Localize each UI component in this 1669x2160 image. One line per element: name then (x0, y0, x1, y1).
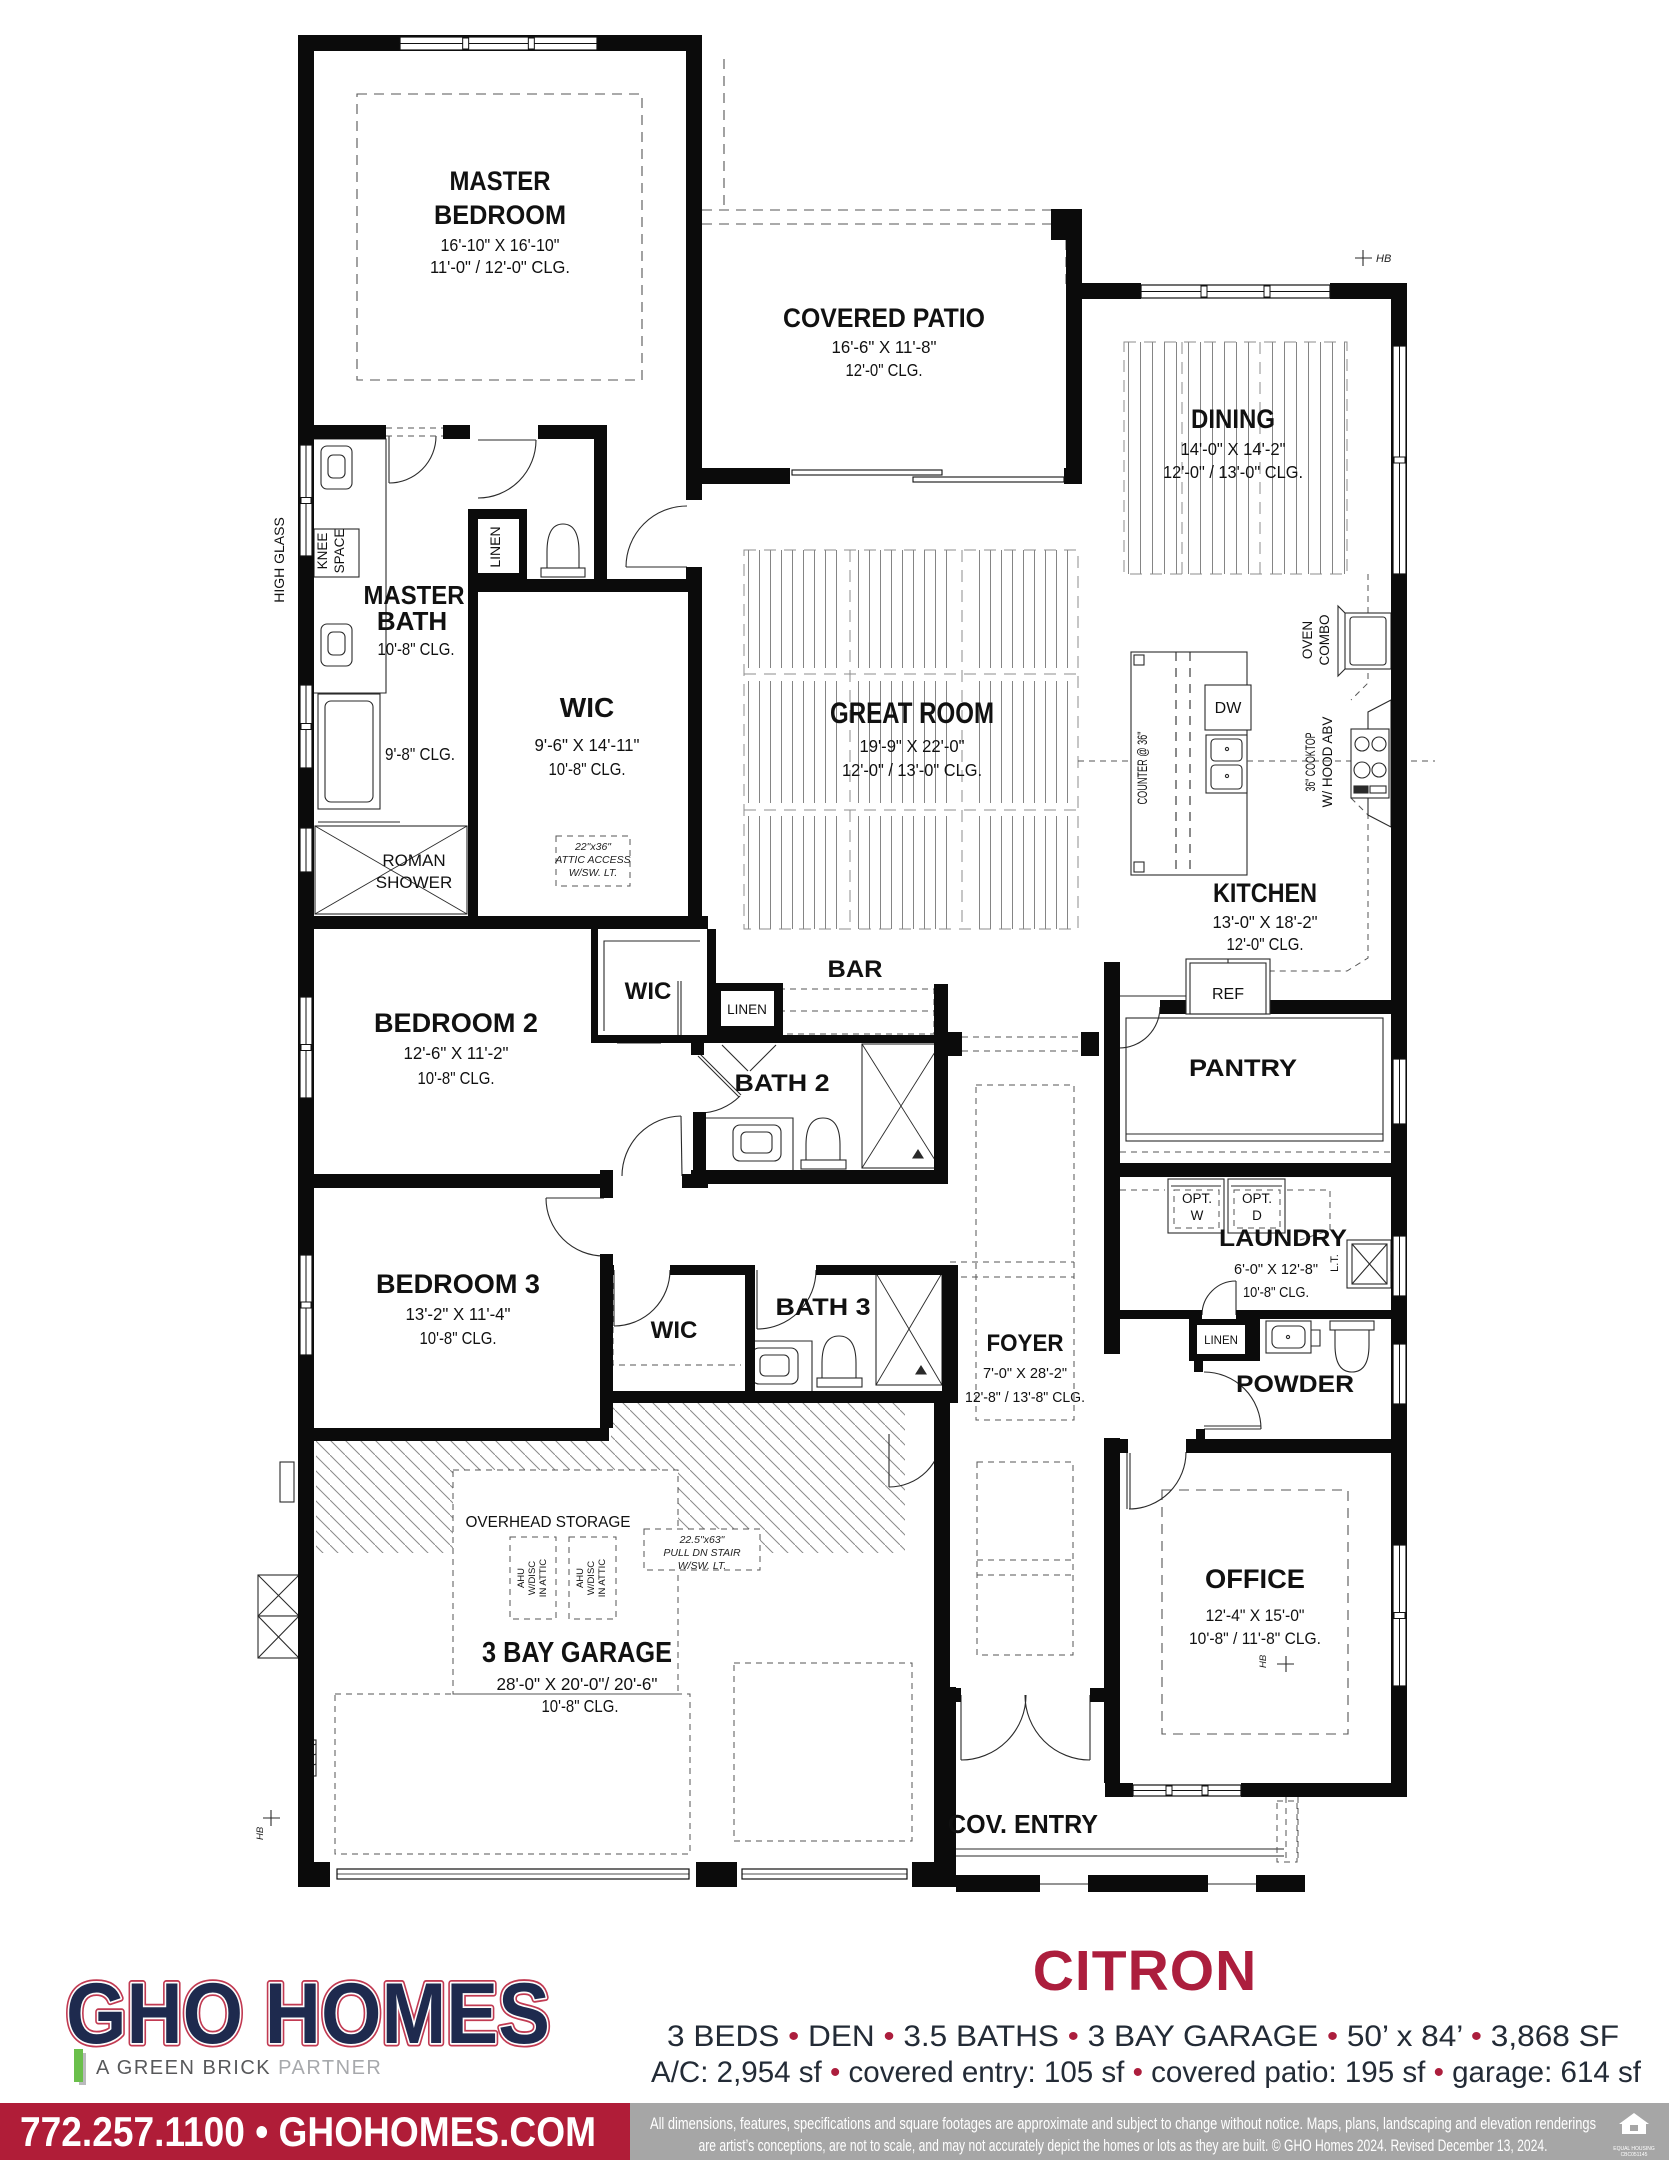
svg-text:are artist’s conceptions, are: are artist’s conceptions, are not to sca… (699, 2137, 1548, 2155)
svg-text:OVEN: OVEN (1300, 621, 1315, 659)
svg-text:All dimensions, features, spec: All dimensions, features, specifications… (650, 2115, 1596, 2133)
svg-text:16'-10" X 16'-10": 16'-10" X 16'-10" (441, 235, 560, 255)
svg-text:PANTRY: PANTRY (1189, 1055, 1297, 1082)
svg-text:10'-8" CLG.: 10'-8" CLG. (420, 1328, 497, 1348)
svg-text:DINING: DINING (1191, 404, 1275, 434)
svg-text:LINEN: LINEN (727, 1002, 767, 1017)
svg-text:BEDROOM 3: BEDROOM 3 (376, 1269, 540, 1299)
svg-text:SHOWER: SHOWER (376, 873, 453, 892)
svg-text:BAR: BAR (828, 956, 883, 983)
svg-text:WIC: WIC (625, 978, 672, 1005)
svg-text:LINEN: LINEN (1204, 1335, 1238, 1347)
svg-text:W/DISC: W/DISC (527, 1561, 538, 1595)
svg-text:9'-8" CLG.: 9'-8" CLG. (385, 744, 455, 764)
svg-text:CITRON: CITRON (1033, 1939, 1257, 2003)
svg-text:10'-8" CLG.: 10'-8" CLG. (418, 1068, 495, 1088)
svg-text:12'-0" CLG.: 12'-0" CLG. (846, 360, 923, 380)
svg-text:COUNTER @ 36": COUNTER @ 36" (1134, 731, 1150, 804)
svg-text:BATH 3: BATH 3 (776, 1294, 871, 1321)
svg-text:FOYER: FOYER (987, 1330, 1064, 1357)
svg-text:6'-0" X 12'-8": 6'-0" X 12'-8" (1234, 1261, 1318, 1278)
svg-text:ROMAN: ROMAN (382, 851, 445, 870)
svg-text:COVERED PATIO: COVERED PATIO (783, 303, 985, 333)
svg-text:3 BEDS • DEN • 3.5 BATHS • 3 B: 3 BEDS • DEN • 3.5 BATHS • 3 BAY GARAGE … (667, 2020, 1619, 2053)
svg-text:13'-0" X 18'-2": 13'-0" X 18'-2" (1213, 912, 1318, 932)
svg-text:DW: DW (1215, 700, 1243, 717)
svg-text:7'-0" X 28'-2": 7'-0" X 28'-2" (983, 1365, 1067, 1382)
svg-text:KITCHEN: KITCHEN (1213, 878, 1317, 908)
svg-text:3 BAY GARAGE: 3 BAY GARAGE (482, 1637, 672, 1669)
svg-text:W/DISC: W/DISC (586, 1561, 597, 1595)
svg-text:10'-8" / 11'-8" CLG.: 10'-8" / 11'-8" CLG. (1189, 1630, 1321, 1648)
svg-text:22.5"x63": 22.5"x63" (679, 1534, 726, 1546)
svg-text:COV. ENTRY: COV. ENTRY (948, 1809, 1098, 1839)
svg-text:WIC: WIC (560, 692, 614, 723)
svg-text:10'-8" CLG.: 10'-8" CLG. (378, 639, 455, 659)
svg-text:KNEE: KNEE (315, 533, 330, 570)
svg-text:HB: HB (1376, 253, 1391, 265)
svg-text:772.257.1100 • GHOHOMES.COM: 772.257.1100 • GHOHOMES.COM (20, 2108, 596, 2155)
svg-text:LINEN: LINEN (487, 526, 503, 567)
svg-text:12'-0" / 13'-0" CLG.: 12'-0" / 13'-0" CLG. (1163, 462, 1303, 482)
svg-text:12'-8" / 13'-8" CLG.: 12'-8" / 13'-8" CLG. (965, 1389, 1085, 1406)
svg-text:POWDER: POWDER (1236, 1371, 1354, 1398)
svg-text:BEDROOM: BEDROOM (434, 200, 566, 230)
svg-text:AHU: AHU (516, 1568, 527, 1588)
svg-text:REF: REF (1212, 986, 1244, 1003)
svg-text:14'-0" X 14'-2": 14'-0" X 14'-2" (1181, 439, 1286, 459)
svg-text:36" COOKTOP: 36" COOKTOP (1303, 733, 1318, 792)
svg-text:L.T.: L.T. (1329, 1254, 1341, 1272)
svg-text:9'-6" X 14'-11": 9'-6" X 14'-11" (535, 735, 640, 755)
svg-text:10'-8" CLG.: 10'-8" CLG. (542, 1696, 619, 1716)
svg-text:OFFICE: OFFICE (1205, 1564, 1305, 1594)
svg-text:GHO HOMES: GHO HOMES (66, 1966, 550, 2062)
svg-text:IN ATTIC: IN ATTIC (597, 1559, 608, 1597)
svg-text:11'-0" / 12'-0" CLG.: 11'-0" / 12'-0" CLG. (430, 257, 570, 277)
svg-text:BATH 2: BATH 2 (735, 1070, 830, 1097)
svg-text:CBC051145: CBC051145 (1621, 2152, 1648, 2158)
svg-text:W: W (1191, 1208, 1204, 1223)
svg-text:12'-4" X 15'-0": 12'-4" X 15'-0" (1206, 1607, 1305, 1625)
svg-text:12'-6" X 11'-2": 12'-6" X 11'-2" (404, 1043, 509, 1063)
svg-text:W/ HOOD ABV: W/ HOOD ABV (1320, 717, 1335, 808)
svg-text:A GREEN BRICK PARTNER: A GREEN BRICK PARTNER (96, 2057, 382, 2079)
svg-text:12'-0" / 13'-0" CLG.: 12'-0" / 13'-0" CLG. (842, 760, 982, 780)
svg-text:SPACE: SPACE (332, 529, 347, 574)
svg-text:LAUNDRY: LAUNDRY (1219, 1225, 1347, 1252)
svg-text:W/SW. LT.: W/SW. LT. (678, 1560, 727, 1572)
svg-text:13'-2" X 11'-4": 13'-2" X 11'-4" (406, 1304, 511, 1324)
svg-text:BEDROOM 2: BEDROOM 2 (374, 1008, 538, 1038)
svg-text:HIGH GLASS: HIGH GLASS (271, 517, 287, 603)
svg-text:28'-0" X 20'-0"/ 20'-6": 28'-0" X 20'-0"/ 20'-6" (497, 1674, 658, 1694)
svg-text:A/C: 2,954 sf • covered entry:: A/C: 2,954 sf • covered entry: 105 sf • … (651, 2056, 1642, 2089)
svg-text:BATH: BATH (377, 606, 447, 636)
svg-text:12'-0" CLG.: 12'-0" CLG. (1227, 934, 1304, 954)
svg-text:AHU: AHU (575, 1568, 586, 1588)
svg-text:10'-8" CLG.: 10'-8" CLG. (549, 759, 626, 779)
svg-text:GREAT ROOM: GREAT ROOM (830, 697, 994, 730)
svg-text:OVERHEAD STORAGE: OVERHEAD STORAGE (466, 1514, 631, 1531)
svg-text:22"x36": 22"x36" (574, 841, 612, 853)
svg-text:MASTER: MASTER (450, 166, 551, 196)
svg-text:19'-9" X 22'-0": 19'-9" X 22'-0" (860, 736, 965, 756)
svg-text:OPT.: OPT. (1182, 1191, 1212, 1206)
svg-text:10'-8" CLG.: 10'-8" CLG. (1243, 1284, 1309, 1301)
svg-text:WIC: WIC (651, 1317, 698, 1344)
svg-text:HB: HB (1258, 1654, 1269, 1668)
svg-text:D: D (1252, 1208, 1262, 1223)
svg-text:COMBO: COMBO (1317, 614, 1332, 665)
svg-text:PULL DN STAIR: PULL DN STAIR (663, 1547, 741, 1559)
svg-text:OPT.: OPT. (1242, 1191, 1272, 1206)
svg-text:W/SW. LT.: W/SW. LT. (569, 867, 618, 879)
svg-text:IN ATTIC: IN ATTIC (538, 1559, 549, 1597)
svg-text:16'-6" X 11'-8": 16'-6" X 11'-8" (832, 337, 937, 357)
svg-text:HB: HB (255, 1826, 266, 1840)
svg-text:ATTIC ACCESS: ATTIC ACCESS (554, 854, 630, 866)
